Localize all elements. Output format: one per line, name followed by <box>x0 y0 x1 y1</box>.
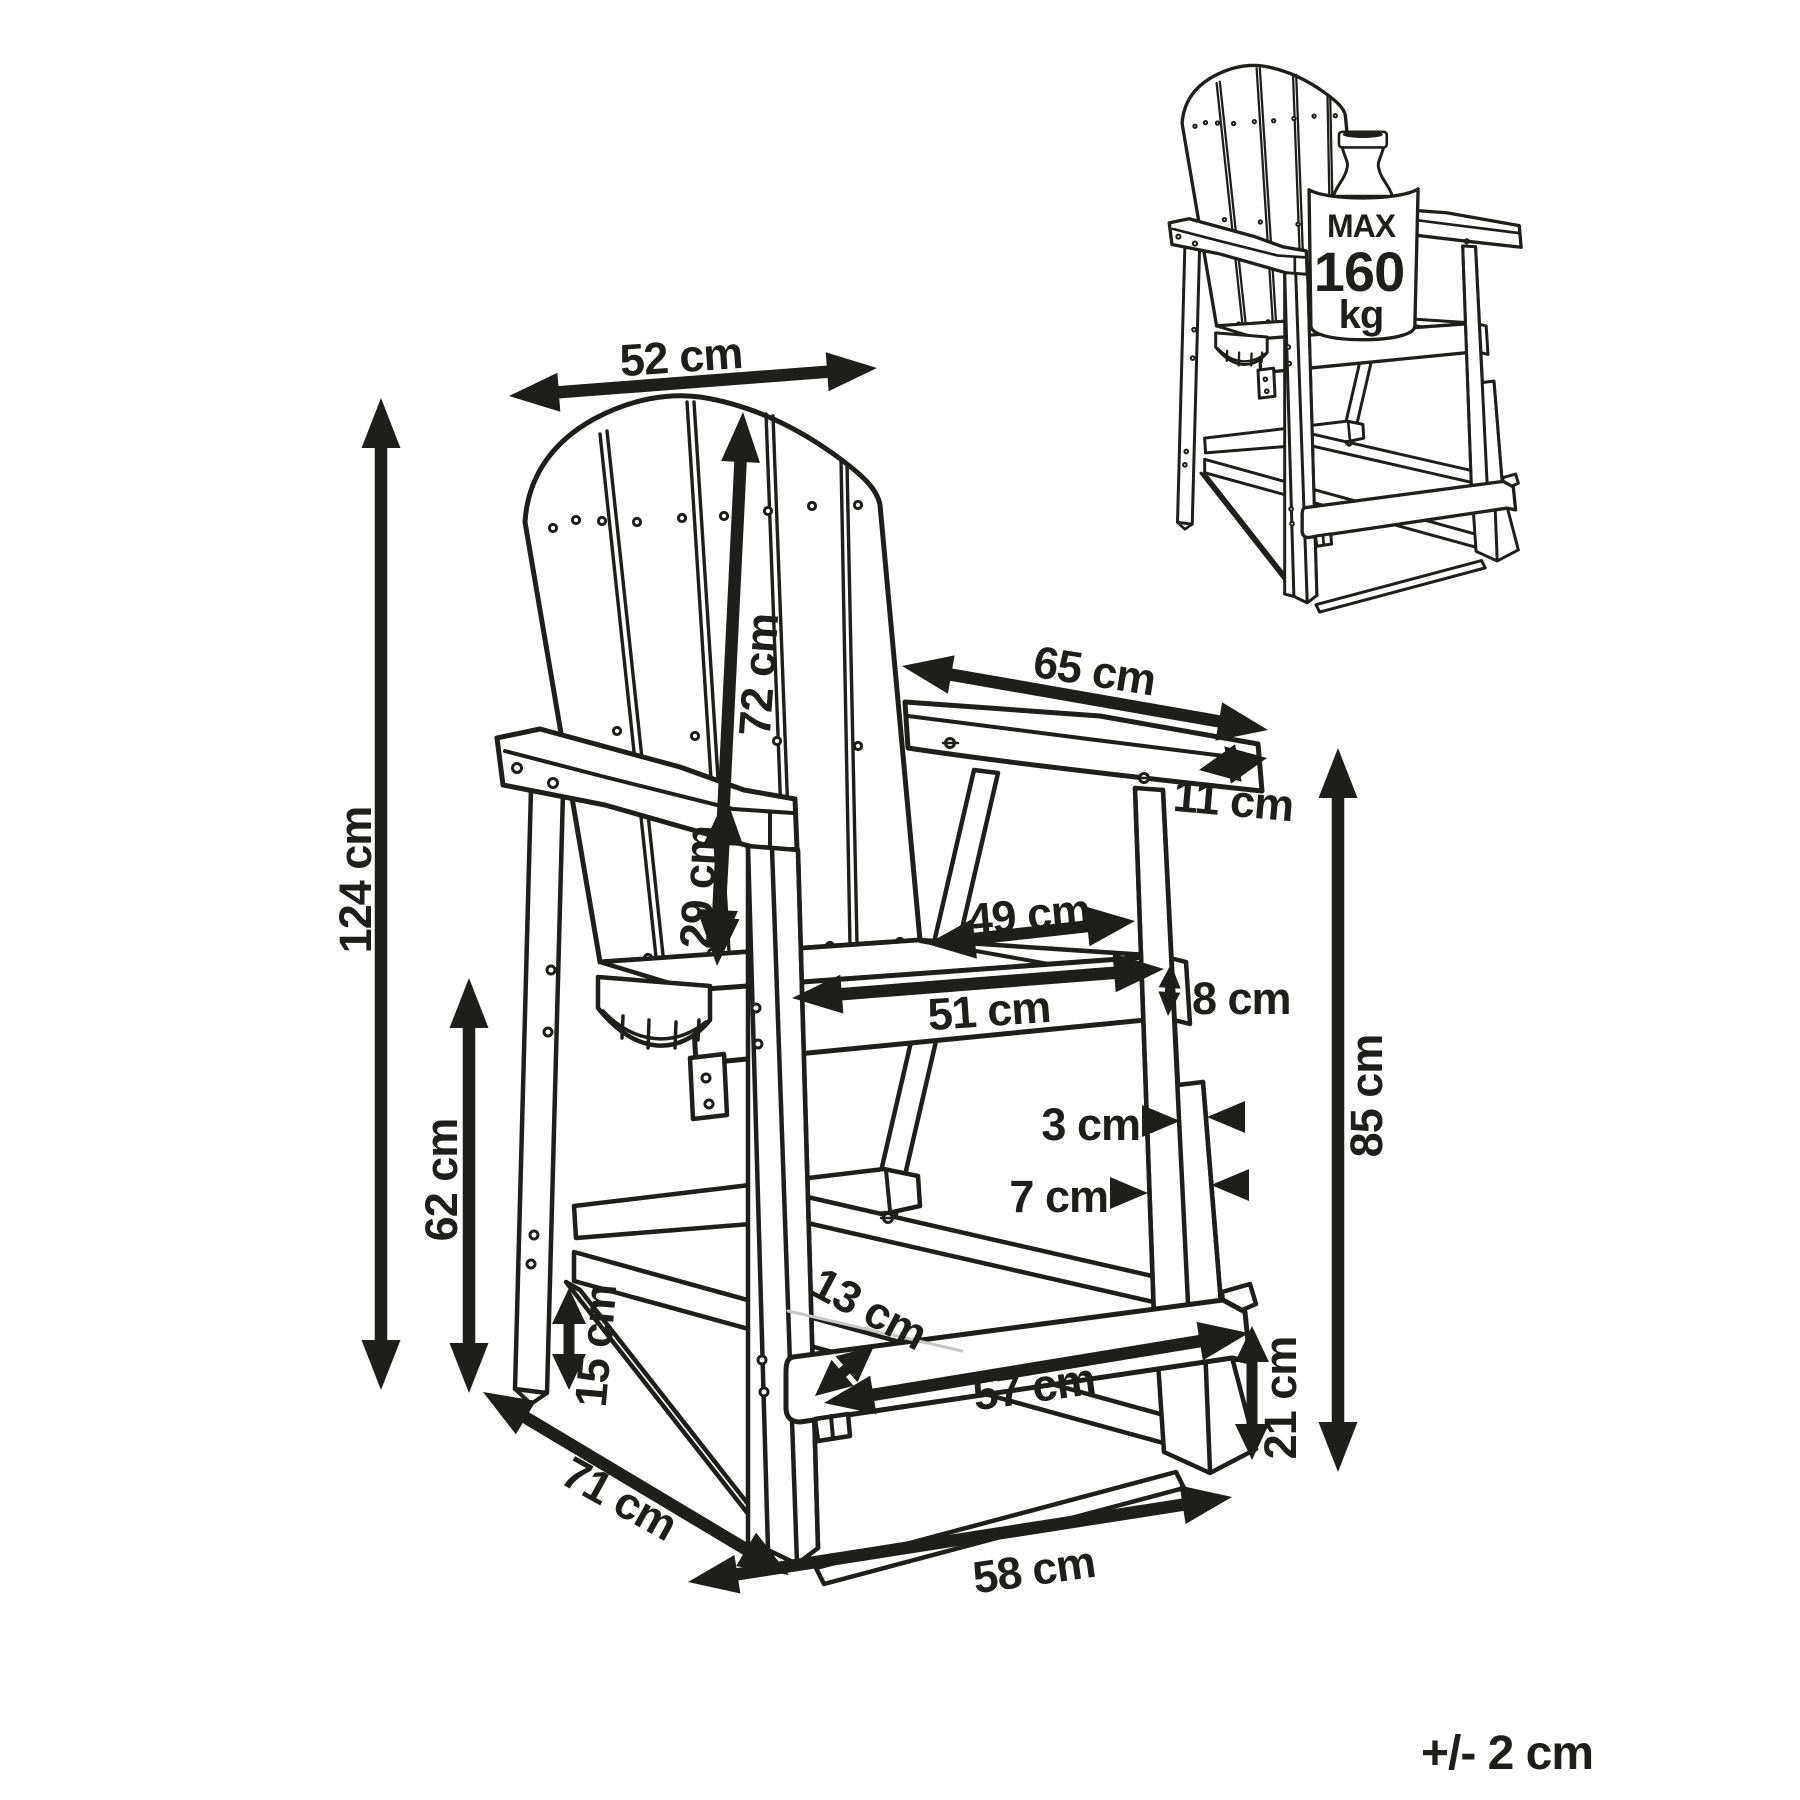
svg-text:MAX: MAX <box>1327 208 1397 244</box>
svg-text:kg: kg <box>1339 293 1384 337</box>
svg-text:15 cm: 15 cm <box>565 1282 626 1409</box>
svg-text:72 cm: 72 cm <box>729 612 788 738</box>
svg-text:+/- 2 cm: +/- 2 cm <box>1421 1727 1593 1780</box>
svg-text:51 cm: 51 cm <box>926 981 1052 1040</box>
svg-text:11 cm: 11 cm <box>1171 770 1295 831</box>
svg-text:7 cm: 7 cm <box>1009 1171 1108 1222</box>
svg-text:8 cm: 8 cm <box>1192 973 1291 1024</box>
svg-text:21 cm: 21 cm <box>1255 1337 1306 1460</box>
svg-text:29 cm: 29 cm <box>670 825 727 950</box>
svg-text:49 cm: 49 cm <box>965 884 1092 945</box>
svg-text:62 cm: 62 cm <box>416 1119 467 1242</box>
svg-text:52 cm: 52 cm <box>618 327 744 386</box>
svg-text:3 cm: 3 cm <box>1041 1099 1140 1150</box>
svg-text:124 cm: 124 cm <box>330 807 381 954</box>
svg-text:85 cm: 85 cm <box>1341 1035 1392 1158</box>
